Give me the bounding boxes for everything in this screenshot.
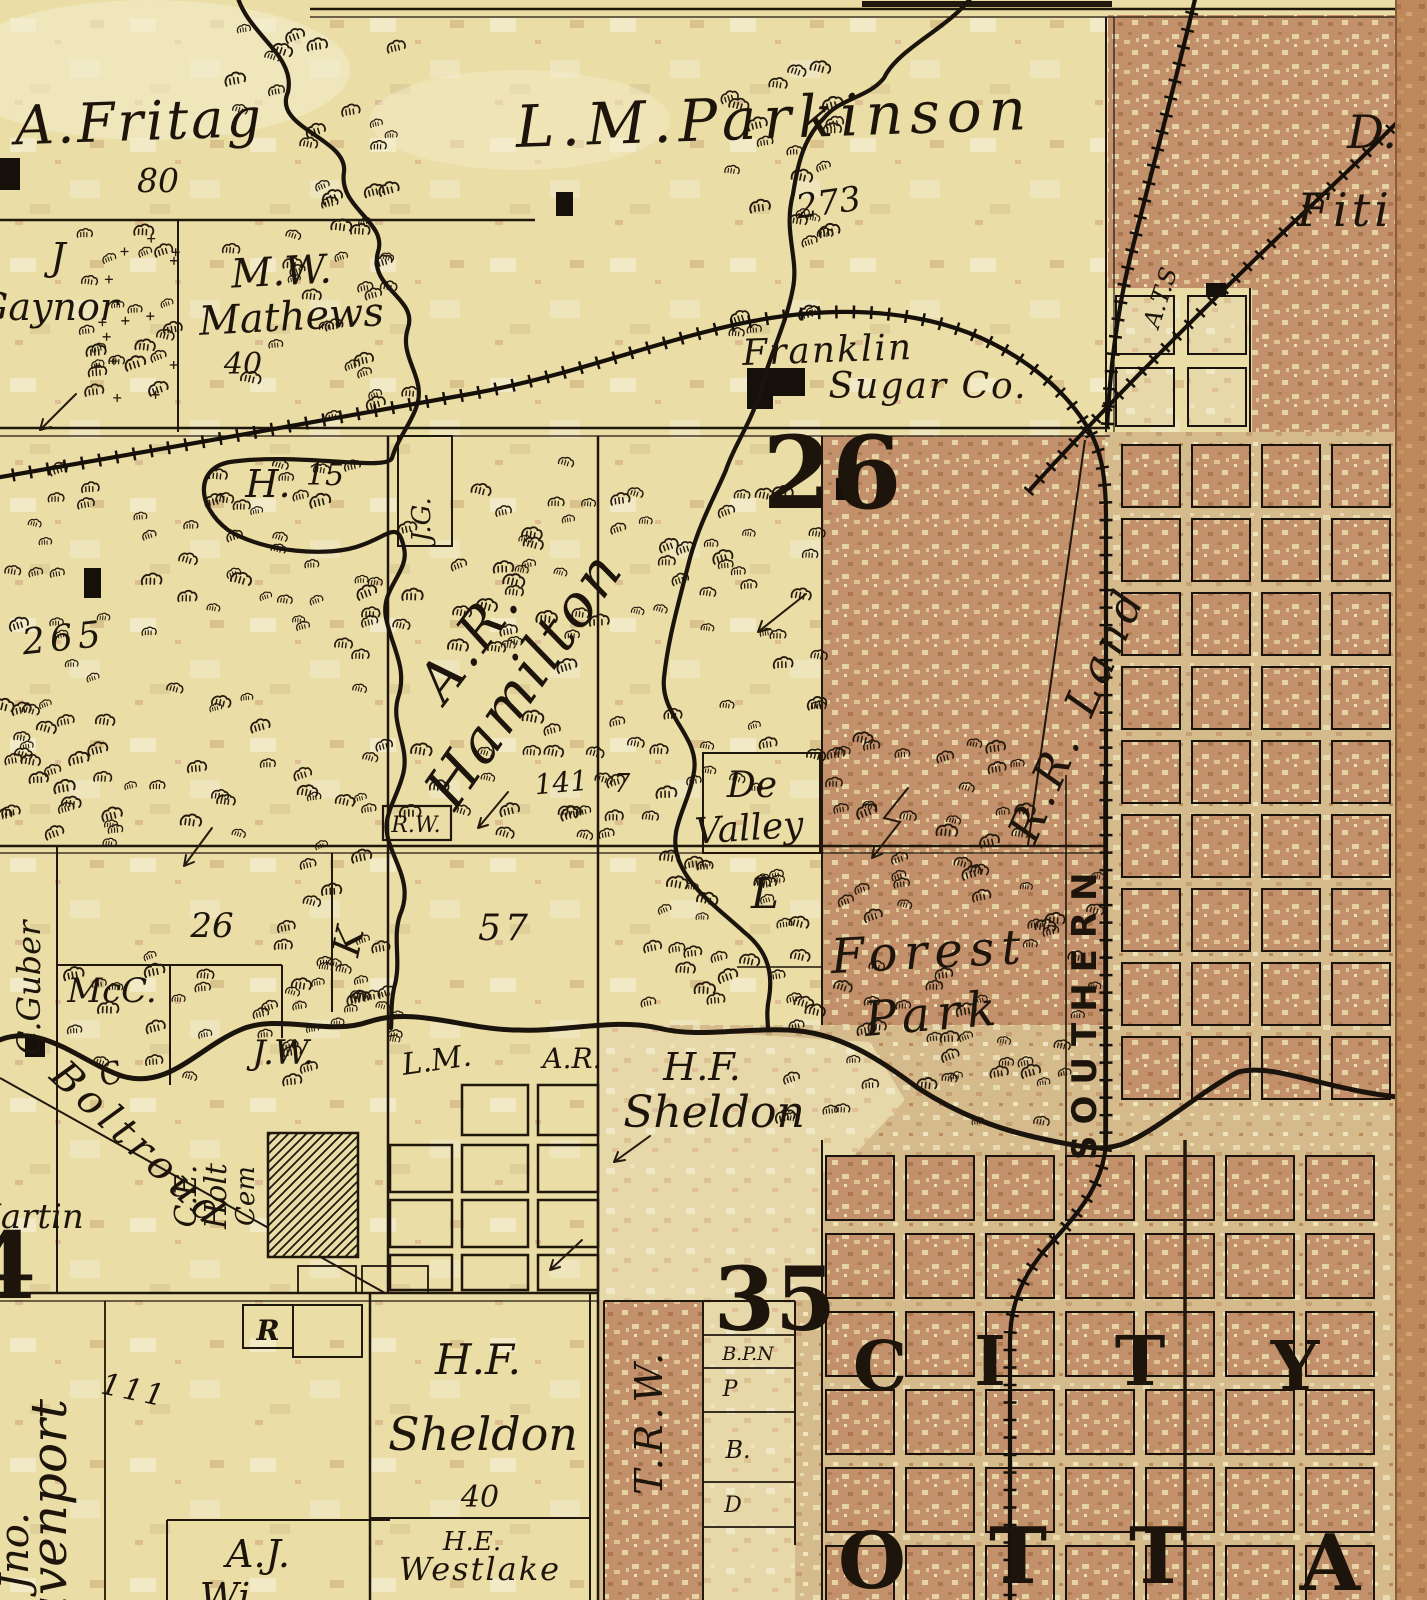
label-l-parcel: L [750, 869, 779, 918]
city-block [1306, 1234, 1374, 1298]
city-block [1226, 1156, 1294, 1220]
label-southern: SOUTHERN [1065, 861, 1105, 1160]
city-block [1226, 1234, 1294, 1298]
city-block [1122, 667, 1180, 729]
city-block [1122, 963, 1180, 1025]
label-b: B. [724, 1436, 750, 1464]
label-city-c: C [853, 1327, 907, 1407]
city-block [1066, 1468, 1134, 1532]
city-block [1066, 1546, 1134, 1600]
label-otta-t2: T [1129, 1511, 1187, 1600]
city-block [1122, 519, 1180, 581]
city-block [1188, 368, 1246, 426]
city-block [1262, 519, 1320, 581]
city-block [1192, 1037, 1250, 1099]
city-block [1192, 889, 1250, 951]
label-fitch-first: D. [1346, 105, 1397, 159]
label-davenport-last: Davenport [20, 1398, 78, 1600]
label-aj-first: A.J. [223, 1532, 290, 1576]
city-block [1122, 1037, 1180, 1099]
label-guber: C.Guber [10, 919, 48, 1055]
city-block [1332, 889, 1390, 951]
city-block [1262, 667, 1320, 729]
label-holt-3: Cem [231, 1166, 261, 1226]
label-h-owner: H. [244, 462, 290, 506]
city-block [1146, 1156, 1214, 1220]
plat-map-page: A.Fritag 80 J Gaynor M.W. Mathews 40 L.M… [0, 0, 1427, 1600]
city-block [1262, 815, 1320, 877]
city-block [1306, 1156, 1374, 1220]
city-block [1192, 667, 1250, 729]
label-r-box: R [255, 1314, 279, 1347]
label-sheldon-bot-last: Sheldon [388, 1407, 578, 1461]
label-devalley-2: Valley [693, 804, 805, 853]
label-d: D [723, 1493, 742, 1518]
city-block [1332, 519, 1390, 581]
label-sheldon-mid-last: Sheldon [623, 1087, 805, 1138]
city-block [1226, 1546, 1294, 1600]
label-sheldon-bot-acres: 40 [460, 1480, 499, 1515]
city-block [1192, 741, 1250, 803]
city-block [1122, 815, 1180, 877]
page-edge-strip [1396, 0, 1427, 1600]
city-block [1146, 1234, 1214, 1298]
label-jg: J.G. [407, 497, 437, 547]
label-section-35: 35 [714, 1247, 836, 1351]
label-gaynor-last: Gaynor [0, 285, 121, 329]
label-trw: T.R.W. [627, 1348, 671, 1495]
label-holt-2: Holt [199, 1162, 234, 1230]
city-block [1262, 1037, 1320, 1099]
label-city-t: T [1115, 1322, 1166, 1402]
label-mathews-last: Mathews [197, 289, 385, 345]
label-otta-a: A [1299, 1518, 1362, 1600]
city-block [1332, 667, 1390, 729]
city-block [826, 1156, 894, 1220]
label-otta-o: O [838, 1516, 906, 1600]
city-block [1262, 593, 1320, 655]
city-block [1192, 815, 1250, 877]
plat-map: A.Fritag 80 J Gaynor M.W. Mathews 40 L.M… [0, 0, 1427, 1600]
city-block [1226, 1468, 1294, 1532]
city-block [1192, 519, 1250, 581]
label-otta-t1: T [989, 1511, 1047, 1600]
label-forest: Forest [828, 919, 1029, 985]
label-franklin-2: Sugar Co. [828, 366, 1027, 407]
label-sheldon-mid-first: H.F. [662, 1045, 741, 1089]
label-hamilton-acres: 141 [533, 764, 589, 802]
city-block [1122, 889, 1180, 951]
cemetery-hatch [268, 1133, 358, 1257]
city-block [1262, 963, 1320, 1025]
label-mcc: McC. [66, 971, 156, 1011]
label-h-acres: 15 [306, 458, 344, 493]
label-fritag-acres: 80 [137, 161, 179, 200]
label-city-i: I [974, 1322, 1006, 1402]
city-block [906, 1390, 974, 1454]
city-block [1332, 593, 1390, 655]
label-bpn: B.P.N [721, 1343, 775, 1365]
city-block [1332, 963, 1390, 1025]
label-city-y: Y [1270, 1327, 1321, 1407]
city-block [1192, 445, 1250, 507]
city-block [1192, 593, 1250, 655]
city-block [1332, 741, 1390, 803]
city-block [1122, 741, 1180, 803]
label-rw: R.W. [390, 813, 440, 838]
label-mathews-acres: 40 [223, 347, 262, 382]
label-section-26: 26 [762, 414, 901, 532]
city-block [1116, 368, 1174, 426]
city-block [1192, 963, 1250, 1025]
label-martin: Martin [0, 1197, 84, 1237]
city-block [1122, 445, 1180, 507]
label-devalley-1: De [726, 765, 777, 806]
label-parcel-26: 26 [189, 906, 233, 946]
label-parcel-57: 57 [478, 908, 532, 949]
label-hamilton-extra: 7 [614, 769, 631, 799]
label-ar: A.R. [539, 1042, 601, 1075]
city-block [906, 1468, 974, 1532]
label-mathews-first: M.W. [229, 246, 333, 297]
label-jw: J.W. [246, 1033, 314, 1073]
label-westlake-last: Westlake [399, 1550, 561, 1588]
city-block [1262, 741, 1320, 803]
city-block [906, 1312, 974, 1376]
city-block [1332, 445, 1390, 507]
label-sheldon-bot-first: H.F. [434, 1335, 521, 1384]
city-block [1262, 889, 1320, 951]
label-holt-cem: C.E. Holt Cem [169, 1162, 261, 1230]
label-aj-last: Wi [200, 1575, 251, 1600]
label-p: P [722, 1377, 739, 1402]
city-block [1332, 815, 1390, 877]
city-block [986, 1156, 1054, 1220]
city-block [1262, 445, 1320, 507]
label-fritag: A.Fritag [9, 86, 265, 158]
label-fitch-last: Fiti [1296, 183, 1393, 237]
city-block [906, 1546, 974, 1600]
city-block [906, 1234, 974, 1298]
city-block [906, 1156, 974, 1220]
city-block [1066, 1234, 1134, 1298]
